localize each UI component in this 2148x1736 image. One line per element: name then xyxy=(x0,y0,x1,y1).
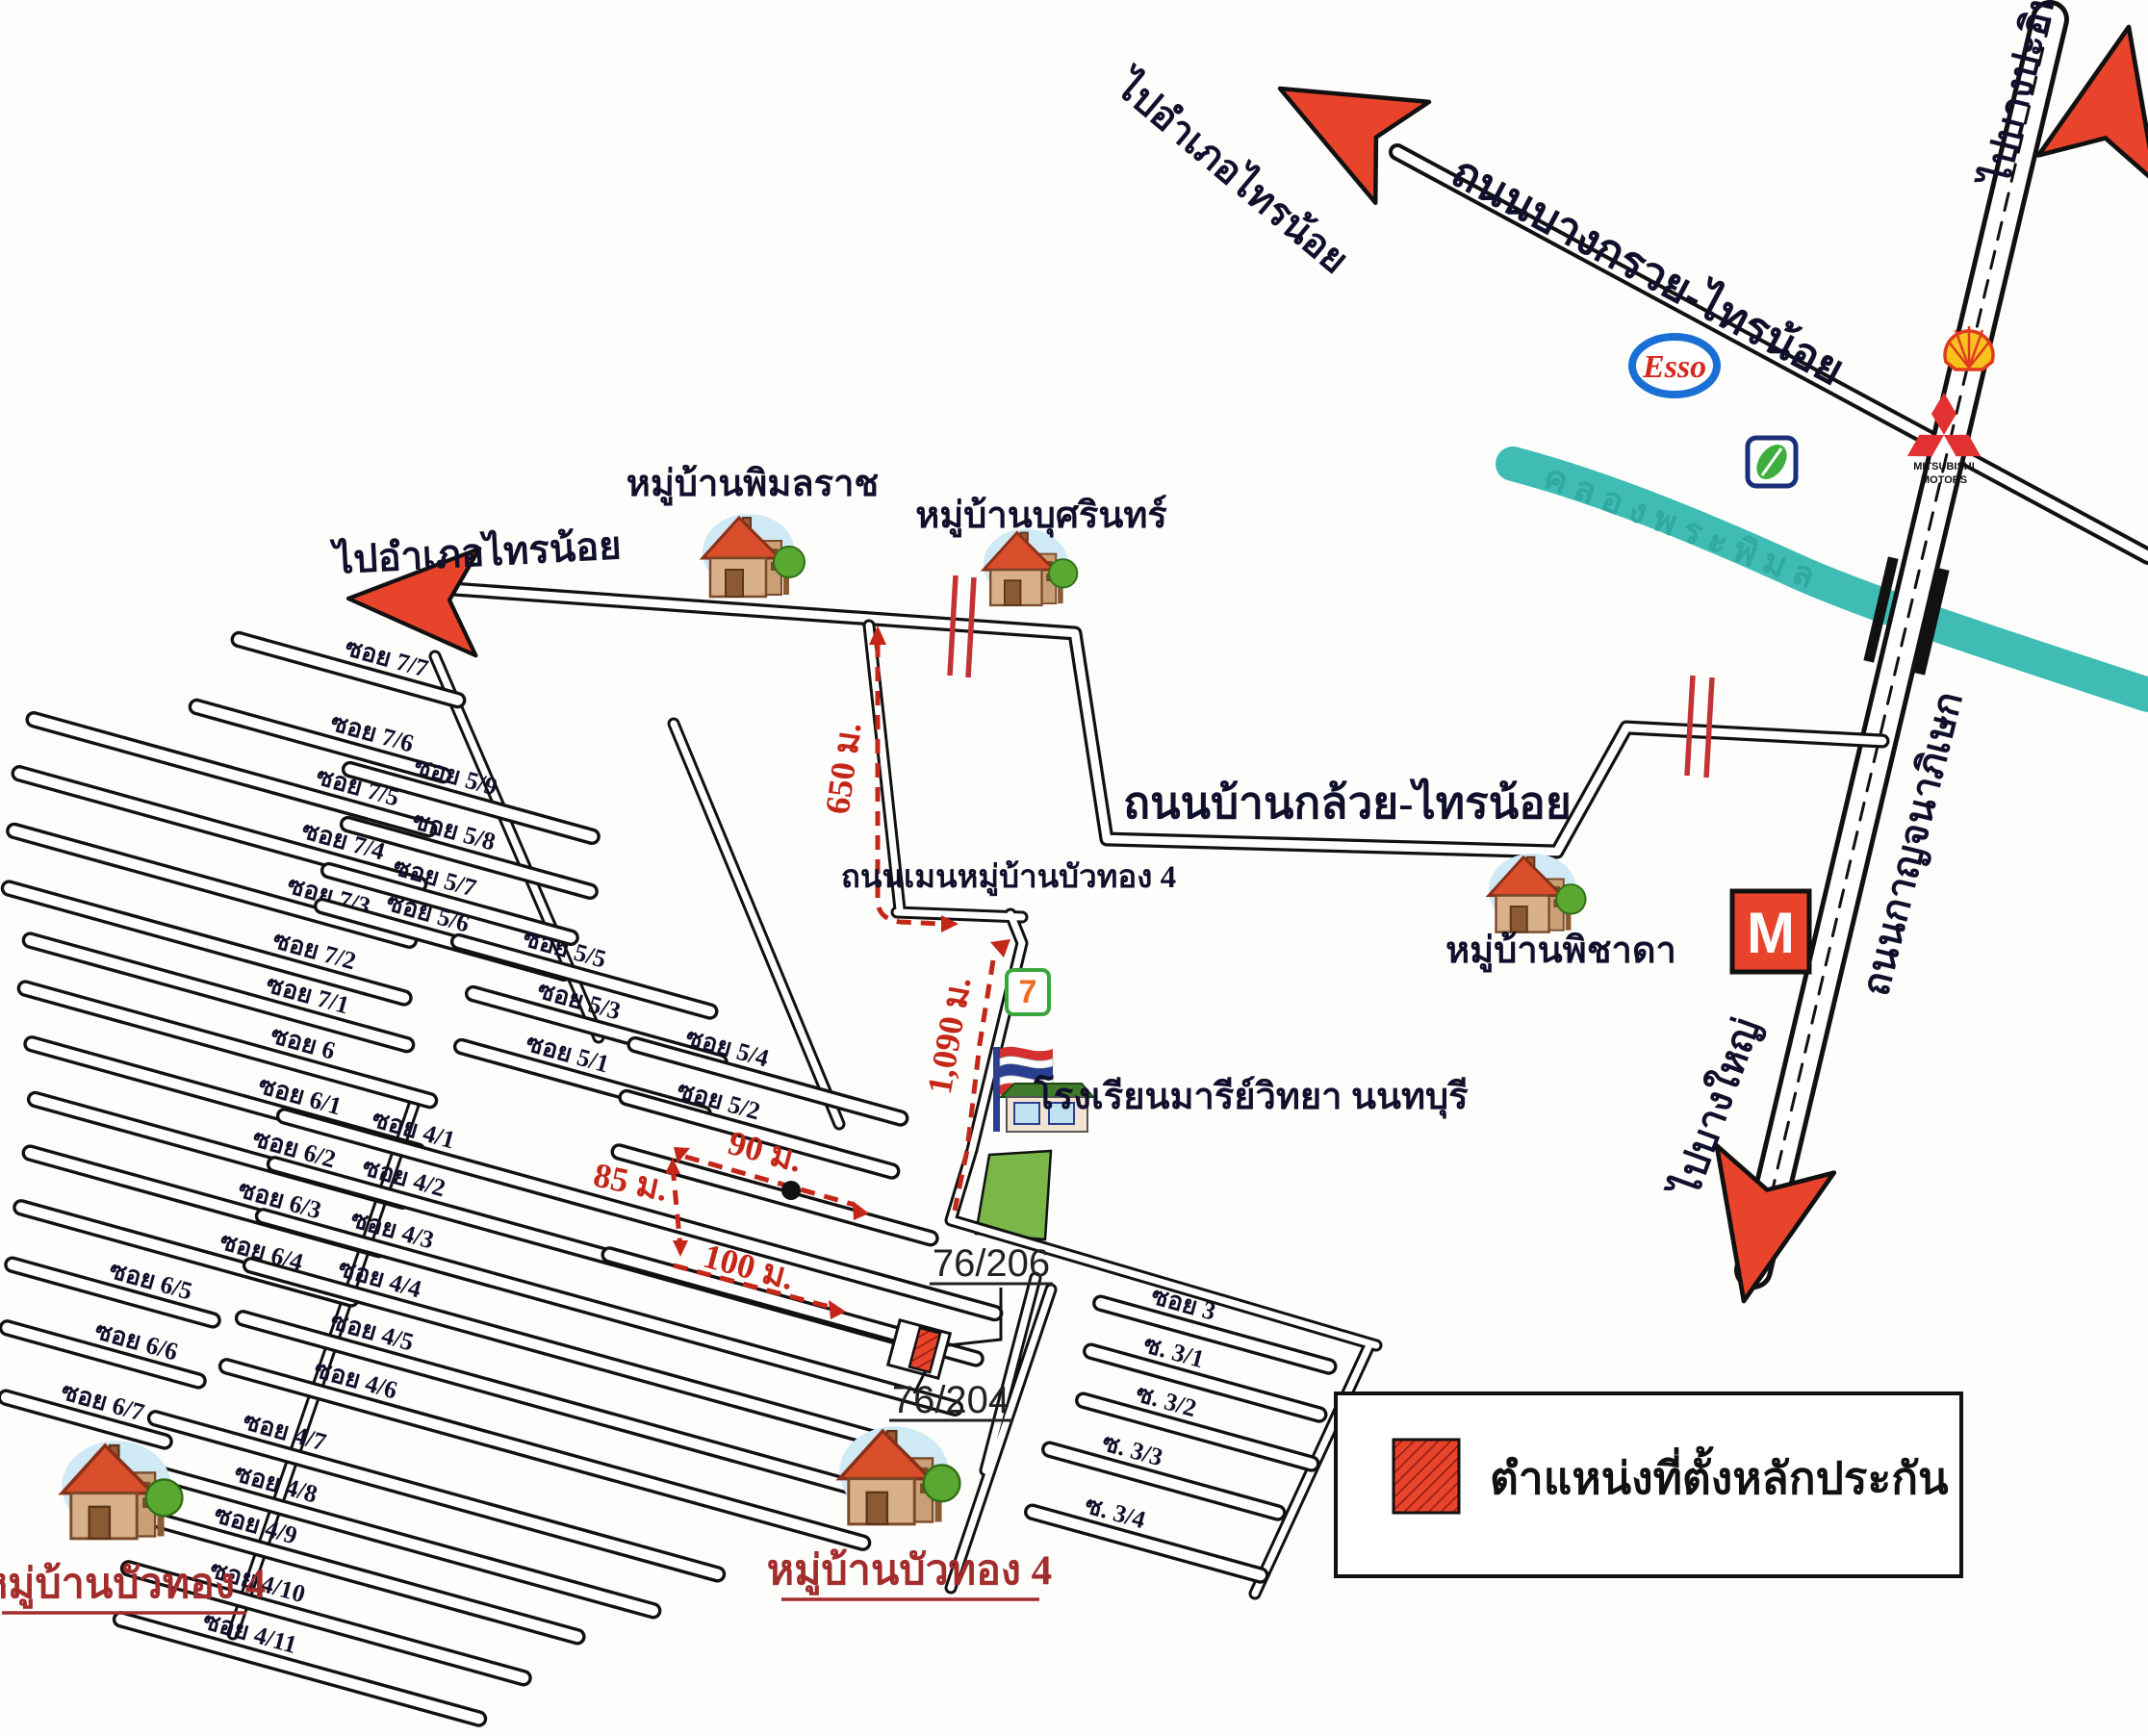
legend: ตำแหน่งที่ตั้งหลักประกัน xyxy=(1336,1393,1961,1576)
label-to-bangpain: ไปบางปะอิน xyxy=(1973,0,2066,192)
label-busarin: หมู่บ้านบุศรินทร์ xyxy=(915,495,1167,538)
legend-label: ตำแหน่งที่ตั้งหลักประกัน xyxy=(1490,1445,1949,1503)
label-house-76-204: 76/204 xyxy=(892,1379,1010,1421)
seven-eleven-7: 7 xyxy=(1019,974,1037,1010)
label-phichada: หมู่บ้านพิชาดา xyxy=(1445,931,1676,973)
label-buathong-center: หมู่บ้านบัวทอง 4 xyxy=(767,1548,1052,1596)
esso-text: Esso xyxy=(1642,349,1706,385)
bangchak-logo xyxy=(1748,438,1796,486)
soi-street: ซอย 6/5 xyxy=(4,1229,228,1329)
label-house-76-206: 76/206 xyxy=(933,1242,1050,1285)
label-school: โรงเรียนมารีย์วิทยา นนทบุรี xyxy=(1033,1074,1469,1119)
makro-logo: M xyxy=(1732,891,1809,972)
labels: ไปอำเภอไทรน้อย ถนนบางกรวย-ไทรน้อย ไปบางป… xyxy=(0,0,2065,1613)
crossing-marks xyxy=(950,575,1712,778)
buathong-center-house-icon xyxy=(839,1426,959,1523)
label-pimonrat: หมู่บ้านพิมลราช xyxy=(626,464,879,506)
arrow-to-sainoi-diag xyxy=(1254,38,1429,203)
label-1090m: 1,090 ม. xyxy=(920,974,979,1097)
seven-eleven-icon: 7 xyxy=(1007,970,1049,1014)
motors-text: MOTORS xyxy=(1921,474,1967,486)
busarin-house-icon xyxy=(984,529,1078,605)
legend-swatch xyxy=(1394,1440,1459,1513)
phichada-house-icon xyxy=(1489,854,1586,932)
label-650m: 650 ม. xyxy=(818,720,869,816)
label-main-road: ถนนเมนหมู่บ้านบัวทอง 4 xyxy=(841,860,1176,897)
soi-street: ซ. 3/4 xyxy=(1024,1476,1276,1584)
location-map: ซอย 7/7ซอย 7/6ซอย 7/5ซอย 7/4ซอย 7/3ซอย 7… xyxy=(0,0,2148,1736)
esso-logo: Esso xyxy=(1632,337,1717,395)
label-to-sainoi-left: ไปอำเภอไทรน้อย xyxy=(329,523,623,582)
label-bankluai-road: ถนนบ้านกล้วย-ไทรน้อย xyxy=(1123,778,1572,828)
mitsubishi-text: MITSUBISHI xyxy=(1913,461,1975,472)
soi-street: ซอย 4/9 xyxy=(118,1475,594,1645)
makro-m: M xyxy=(1747,901,1795,965)
pimonrat-house-icon xyxy=(703,514,805,597)
route-dot xyxy=(781,1181,801,1200)
label-buathong-left: หมู่บ้านบัวทอง 4 xyxy=(0,1562,266,1609)
